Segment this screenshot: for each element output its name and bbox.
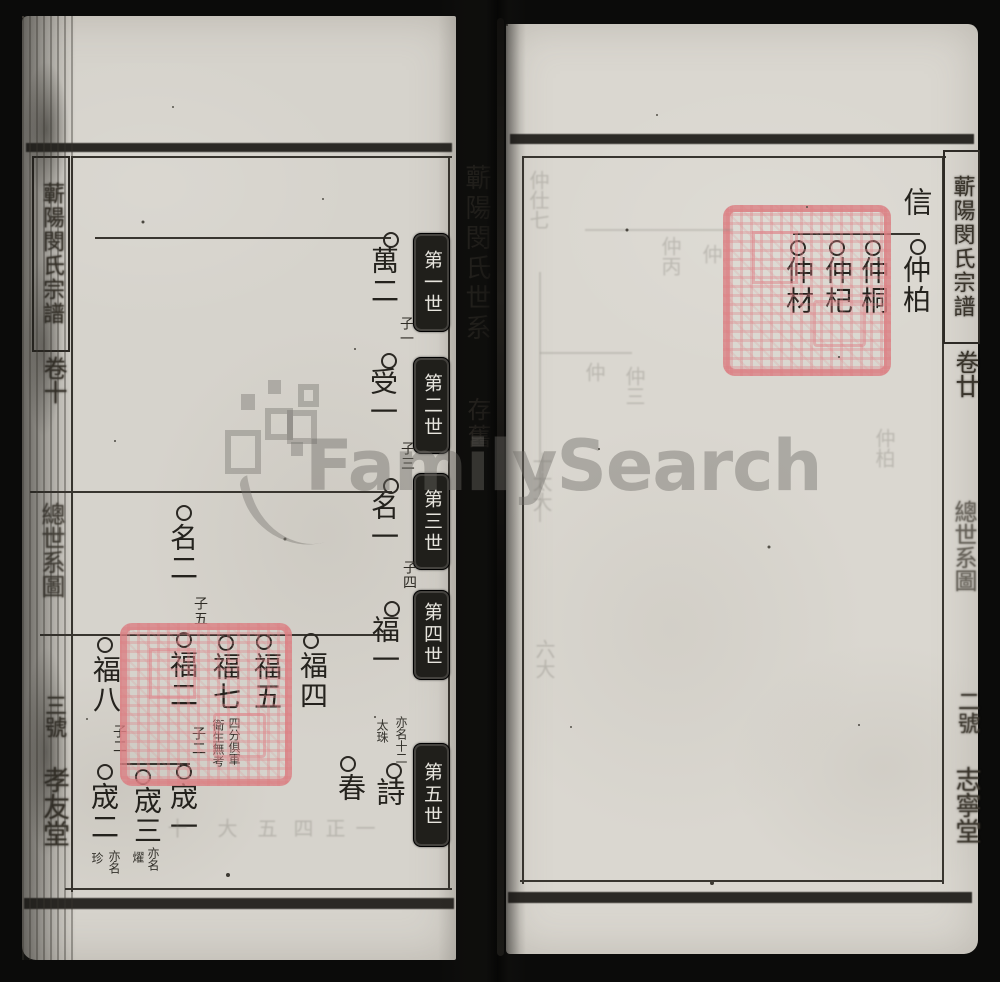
person-name: 福一 bbox=[367, 615, 399, 675]
generation-label: 第五世 bbox=[422, 762, 441, 828]
bleed-through-line bbox=[540, 352, 632, 354]
generation-box-4: 第四世 bbox=[413, 590, 450, 680]
red-seal bbox=[723, 205, 891, 376]
section-label: 總世系圖 bbox=[946, 500, 980, 592]
section-label: 總世系圖 bbox=[34, 502, 69, 598]
bleed-through-text: 仲柏 bbox=[870, 428, 899, 468]
bleed-through-text: 五 bbox=[252, 818, 281, 838]
person-name: 詩 bbox=[372, 777, 404, 808]
alias-note: 珍 bbox=[91, 852, 103, 864]
bleed-through-text: 仲丙 bbox=[656, 236, 685, 276]
copy-number: 二號 bbox=[950, 690, 982, 734]
top-thick-rule bbox=[510, 134, 974, 144]
hall-name: 志寧堂 bbox=[948, 766, 985, 844]
generation-label: 第四世 bbox=[422, 602, 441, 668]
person-name: 信 bbox=[899, 187, 931, 218]
bleed-through-text: 仲 bbox=[580, 362, 609, 382]
person-name: 仲柏 bbox=[898, 255, 930, 315]
alias-note: 亦名十二 bbox=[395, 716, 407, 764]
bleed-through-text: 十 bbox=[162, 818, 191, 838]
bleed-through-text: 四 bbox=[288, 818, 317, 838]
book-title: 蘄陽閔氏宗譜 bbox=[946, 175, 978, 319]
bleed-through-line bbox=[585, 229, 733, 231]
bleed-through-text: 六大 bbox=[530, 639, 559, 679]
person-name: 福八 bbox=[88, 655, 120, 715]
node-marker-icon bbox=[910, 239, 926, 255]
person-name: 福四 bbox=[295, 651, 327, 711]
bottom-thick-rule bbox=[508, 892, 972, 903]
copy-number: 三號 bbox=[37, 694, 69, 738]
alias-note: 亦名 bbox=[108, 850, 120, 874]
bleed-through-text: 一 bbox=[350, 818, 379, 838]
paper-specks bbox=[506, 24, 508, 26]
node-marker-icon bbox=[97, 637, 113, 653]
bleed-through-text: 仲三 bbox=[620, 366, 649, 406]
node-marker-icon bbox=[97, 764, 113, 780]
bleed-through-text: 仲仕七 bbox=[524, 170, 553, 230]
volume-label: 卷十 bbox=[36, 356, 71, 404]
genealogy-book-scan: 蘄陽閔氏世系 存舊 第一世 第二世 第三世 第四世 第五世 萬二 子一 受一 子… bbox=[0, 0, 1000, 982]
generation-box-5: 第五世 bbox=[413, 743, 450, 847]
bottom-border-line bbox=[65, 888, 452, 890]
bottom-border-line bbox=[520, 880, 944, 882]
person-name: 萬二 bbox=[366, 246, 398, 306]
bleed-through-text: 正 bbox=[320, 818, 349, 838]
generation-box-1: 第一世 bbox=[413, 233, 450, 332]
sons-count-label: 子五 bbox=[190, 596, 210, 626]
bleed-through-text: 大 bbox=[212, 818, 241, 838]
node-marker-icon bbox=[303, 633, 319, 649]
person-name: 春 bbox=[333, 773, 365, 803]
person-name: 受一 bbox=[365, 367, 397, 427]
top-border-line bbox=[522, 156, 946, 158]
person-name: 宬三 bbox=[129, 786, 161, 846]
bleed-through-text: 仲 bbox=[697, 244, 726, 264]
node-marker-icon bbox=[176, 505, 192, 521]
hall-name: 孝友堂 bbox=[34, 766, 73, 847]
left-border-line bbox=[522, 156, 524, 884]
paper-specks bbox=[22, 16, 24, 18]
alias-note: 亦名 bbox=[147, 847, 159, 871]
watermark: FamilySearch bbox=[305, 425, 822, 507]
red-seal bbox=[120, 623, 292, 786]
spine-title-box: 蘄陽閔氏宗譜 bbox=[943, 150, 980, 344]
generation-label: 第一世 bbox=[422, 250, 441, 316]
node-marker-icon bbox=[340, 756, 356, 772]
sons-count-label: 子四 bbox=[399, 560, 419, 590]
alias-note: 太珠 bbox=[376, 719, 388, 743]
sons-count-label: 子一 bbox=[396, 316, 416, 346]
volume-label: 卷廿 bbox=[948, 350, 983, 398]
alias-note: 燿 bbox=[132, 851, 144, 863]
top-thick-rule bbox=[26, 143, 452, 152]
generation-rule-1 bbox=[95, 237, 391, 239]
book-title: 蘄陽閔氏宗譜 bbox=[35, 182, 67, 326]
bottom-thick-rule bbox=[24, 898, 454, 909]
person-name: 宬二 bbox=[86, 782, 118, 842]
top-border-line bbox=[72, 156, 452, 158]
person-name: 名二 bbox=[165, 523, 197, 583]
chart-title: 蘄陽閔氏世系 bbox=[458, 164, 495, 384]
spine-title-box: 蘄陽閔氏宗譜 bbox=[32, 156, 70, 352]
